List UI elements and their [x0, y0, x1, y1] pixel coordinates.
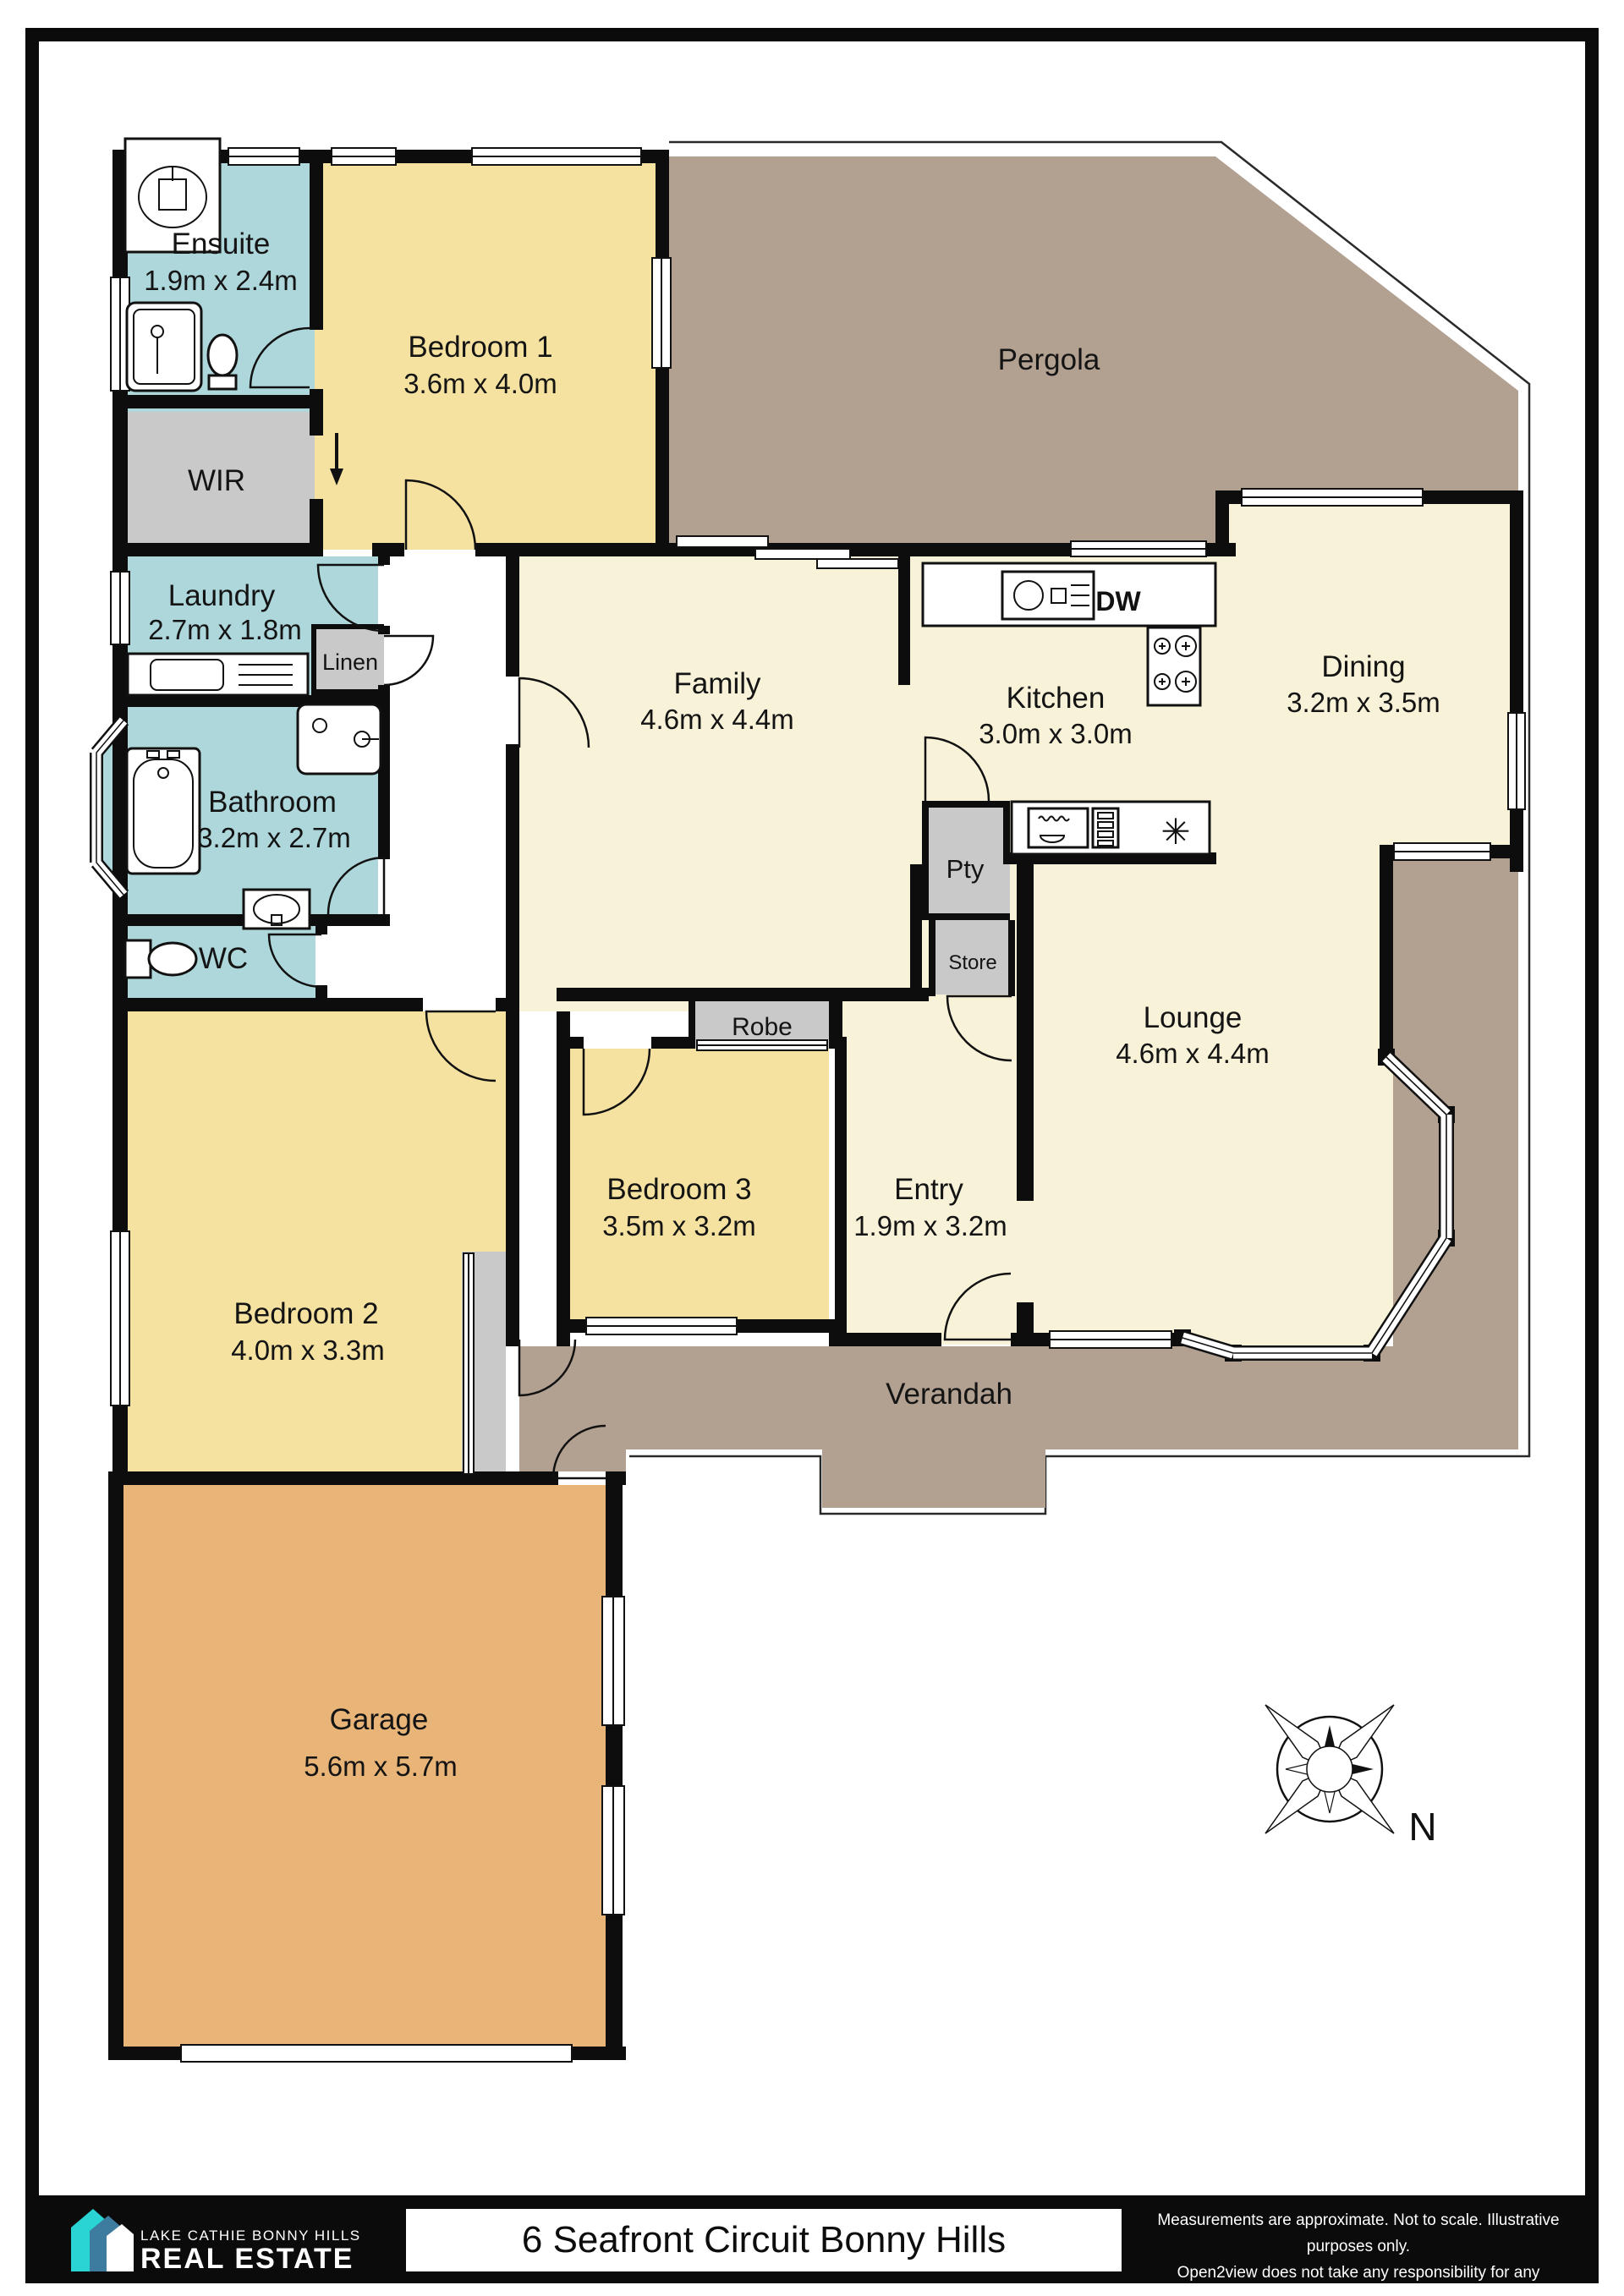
footer-bar: LAKE CATHIE BONNY HILLS REAL ESTATE 6 Se… [39, 2195, 1585, 2283]
disclaimer: Measurements are approximate. Not to sca… [1138, 2207, 1578, 2275]
page-border-frame [25, 28, 1599, 2283]
agency-logo: LAKE CATHIE BONNY HILLS REAL ESTATE [58, 2204, 396, 2277]
floorplan-page: ✳ N [0, 0, 1624, 2296]
agency-name-line1: LAKE CATHIE BONNY HILLS [140, 2228, 361, 2244]
address-box: 6 Seafront Circuit Bonny Hills [406, 2209, 1122, 2271]
property-address: 6 Seafront Circuit Bonny Hills [522, 2219, 1006, 2261]
disclaimer-line2: Open2view does not take any responsibili… [1138, 2260, 1578, 2296]
agency-name-line2: REAL ESTATE [140, 2243, 354, 2276]
disclaimer-line1: Measurements are approximate. Not to sca… [1138, 2207, 1578, 2260]
